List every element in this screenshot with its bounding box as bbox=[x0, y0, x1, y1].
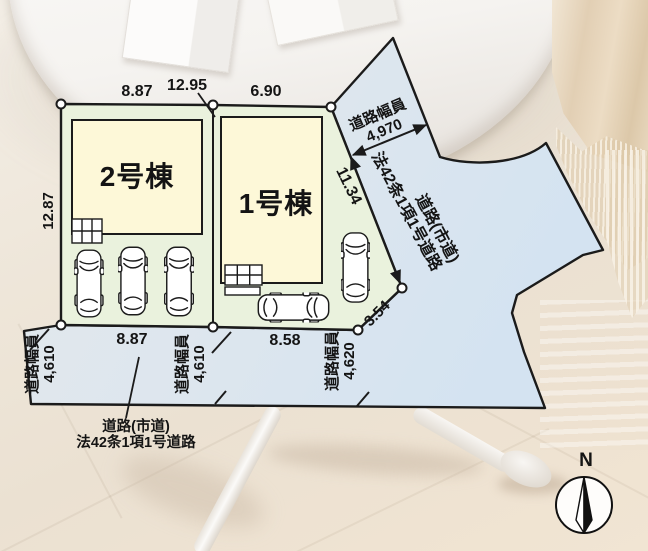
car-top-view bbox=[118, 247, 149, 315]
plan-drawing bbox=[0, 0, 648, 551]
road-width-south-mid: 道路幅員 4,610 bbox=[174, 329, 208, 399]
road-width-value: 4,610 bbox=[41, 329, 58, 399]
road-width-title: 道路幅員 bbox=[324, 325, 341, 397]
road-width-south-right: 道路幅員 4,620 bbox=[324, 325, 358, 397]
building-2-porch-grid bbox=[72, 219, 102, 243]
road-width-title: 道路幅員 bbox=[174, 329, 191, 399]
compass bbox=[556, 477, 612, 533]
road-name-line2: 法42条1項1号道路 bbox=[46, 435, 226, 451]
road-name-bottom: 道路(市道) 法42条1項1号道路 bbox=[46, 419, 226, 451]
dim-bottom-lot1: 8.58 bbox=[255, 333, 315, 350]
site-plan-image: 8.87 12.95 6.90 12.87 2号棟 1号棟 道路幅員 4,970… bbox=[0, 0, 648, 551]
building-1-label: 1号棟 bbox=[216, 189, 336, 219]
road-width-value: 4,610 bbox=[191, 329, 208, 399]
dim-bottom-lot2: 8.87 bbox=[102, 332, 162, 349]
building-2-label: 2号棟 bbox=[77, 162, 197, 192]
dim-left-depth: 12.87 bbox=[41, 189, 57, 233]
building-1-porch-grid bbox=[225, 265, 262, 295]
car-top-view bbox=[340, 233, 372, 302]
road-width-value: 4,620 bbox=[341, 325, 358, 397]
road-name-line1: 道路(市道) bbox=[46, 419, 226, 435]
car-top-view bbox=[258, 291, 328, 323]
dim-top-lot1: 6.90 bbox=[236, 84, 296, 101]
car-top-view bbox=[74, 250, 104, 317]
dim-divider: 12.95 bbox=[157, 78, 217, 95]
road-width-south-left: 道路幅員 4,610 bbox=[24, 329, 58, 399]
compass-north-label: N bbox=[570, 451, 602, 471]
road-width-title: 道路幅員 bbox=[24, 329, 41, 399]
car-top-view bbox=[163, 247, 194, 315]
